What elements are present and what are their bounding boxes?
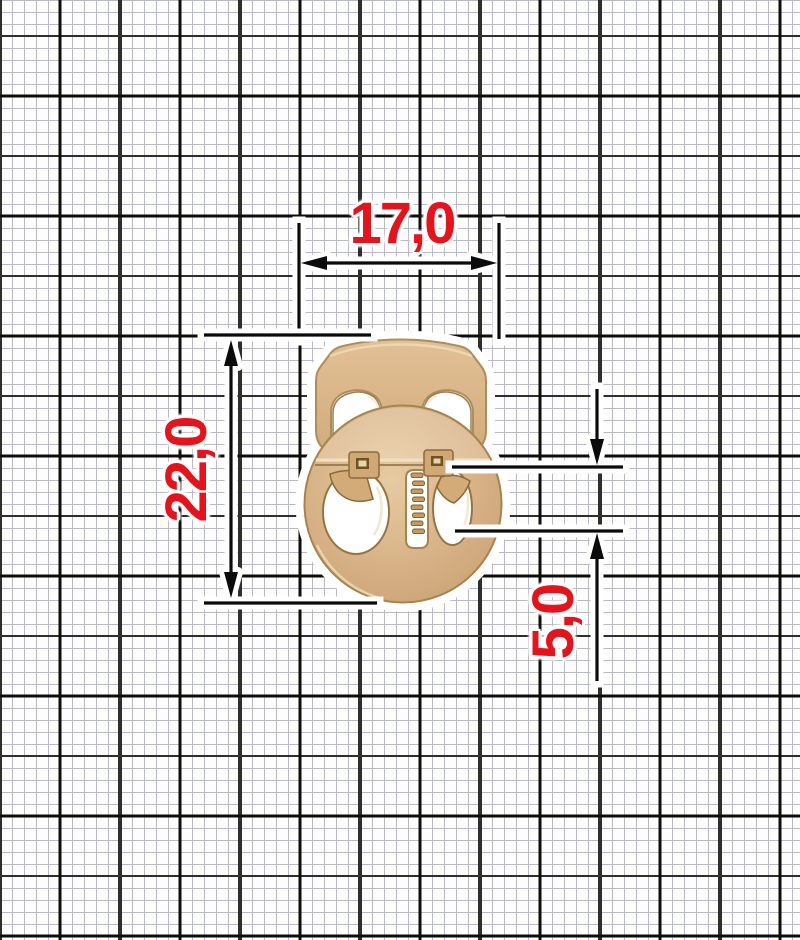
dimension-width-label: 17,0 — [329, 194, 475, 252]
graph-paper: 17,0 22,0 5,0 — [0, 0, 800, 940]
dimension-height-label: 22,0 — [157, 397, 215, 543]
rivet-tab-left — [349, 452, 379, 478]
dimension-slot-label: 5,0 — [524, 549, 582, 695]
product-diagram — [0, 0, 800, 940]
